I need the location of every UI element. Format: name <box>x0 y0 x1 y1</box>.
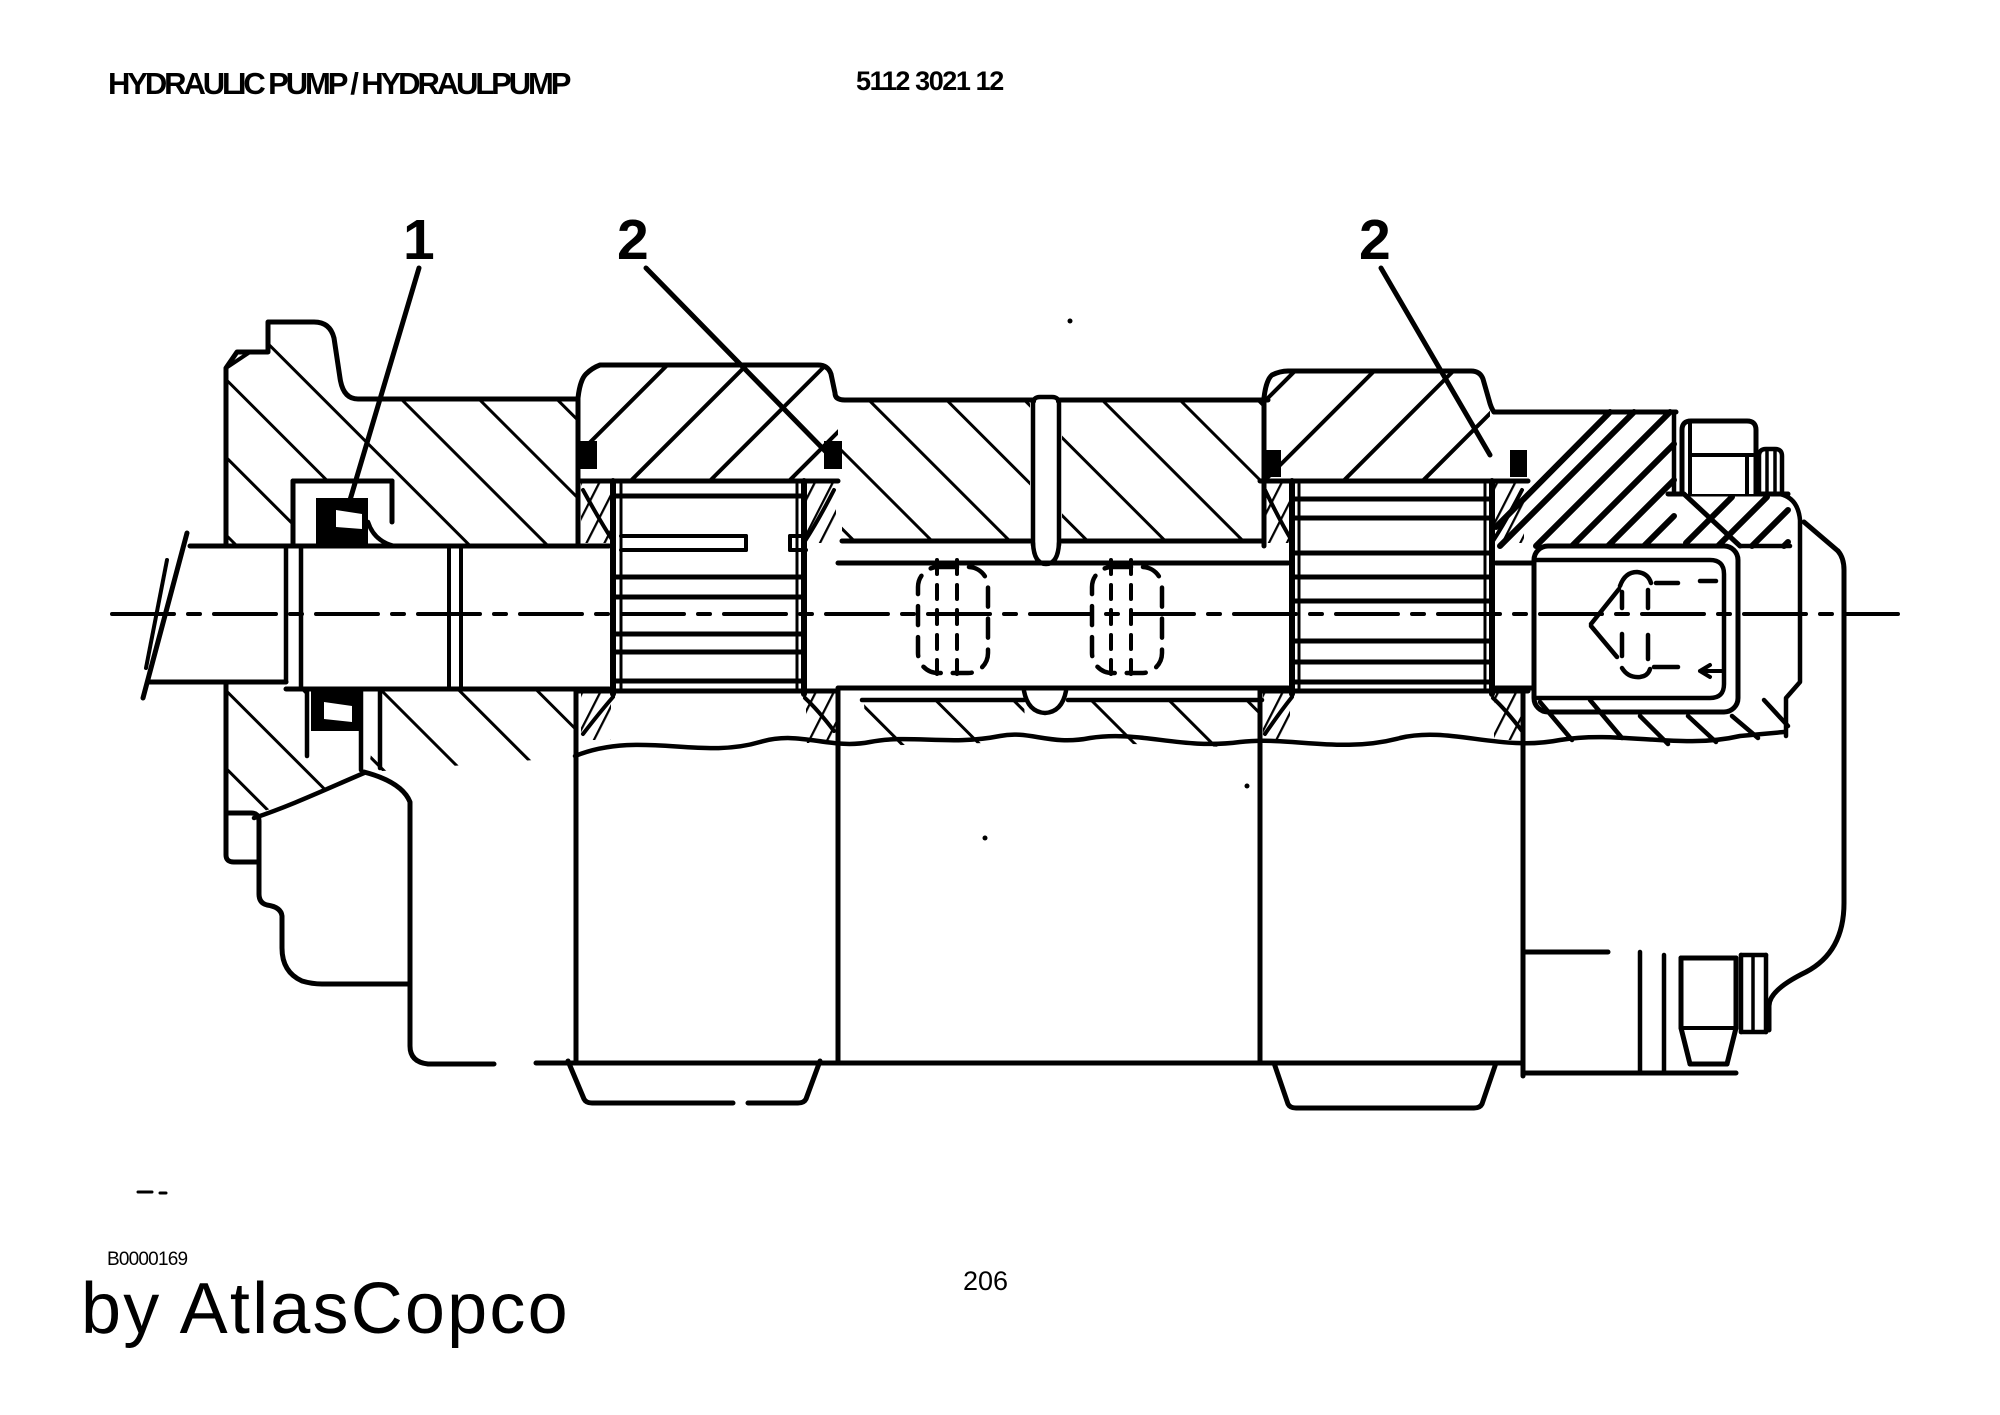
svg-text:206: 206 <box>963 1266 1008 1296</box>
svg-text:2: 2 <box>617 208 649 272</box>
svg-text:HYDRAULIC PUMP / HYDRAULPUMP: HYDRAULIC PUMP / HYDRAULPUMP <box>108 66 571 101</box>
svg-text:1: 1 <box>403 208 435 272</box>
svg-text:B0000169: B0000169 <box>107 1249 187 1270</box>
svg-text:2: 2 <box>1359 208 1391 272</box>
svg-text:by AtlasCopco: by AtlasCopco <box>81 1269 570 1349</box>
svg-text:5112 3021 12: 5112 3021 12 <box>856 66 1003 96</box>
